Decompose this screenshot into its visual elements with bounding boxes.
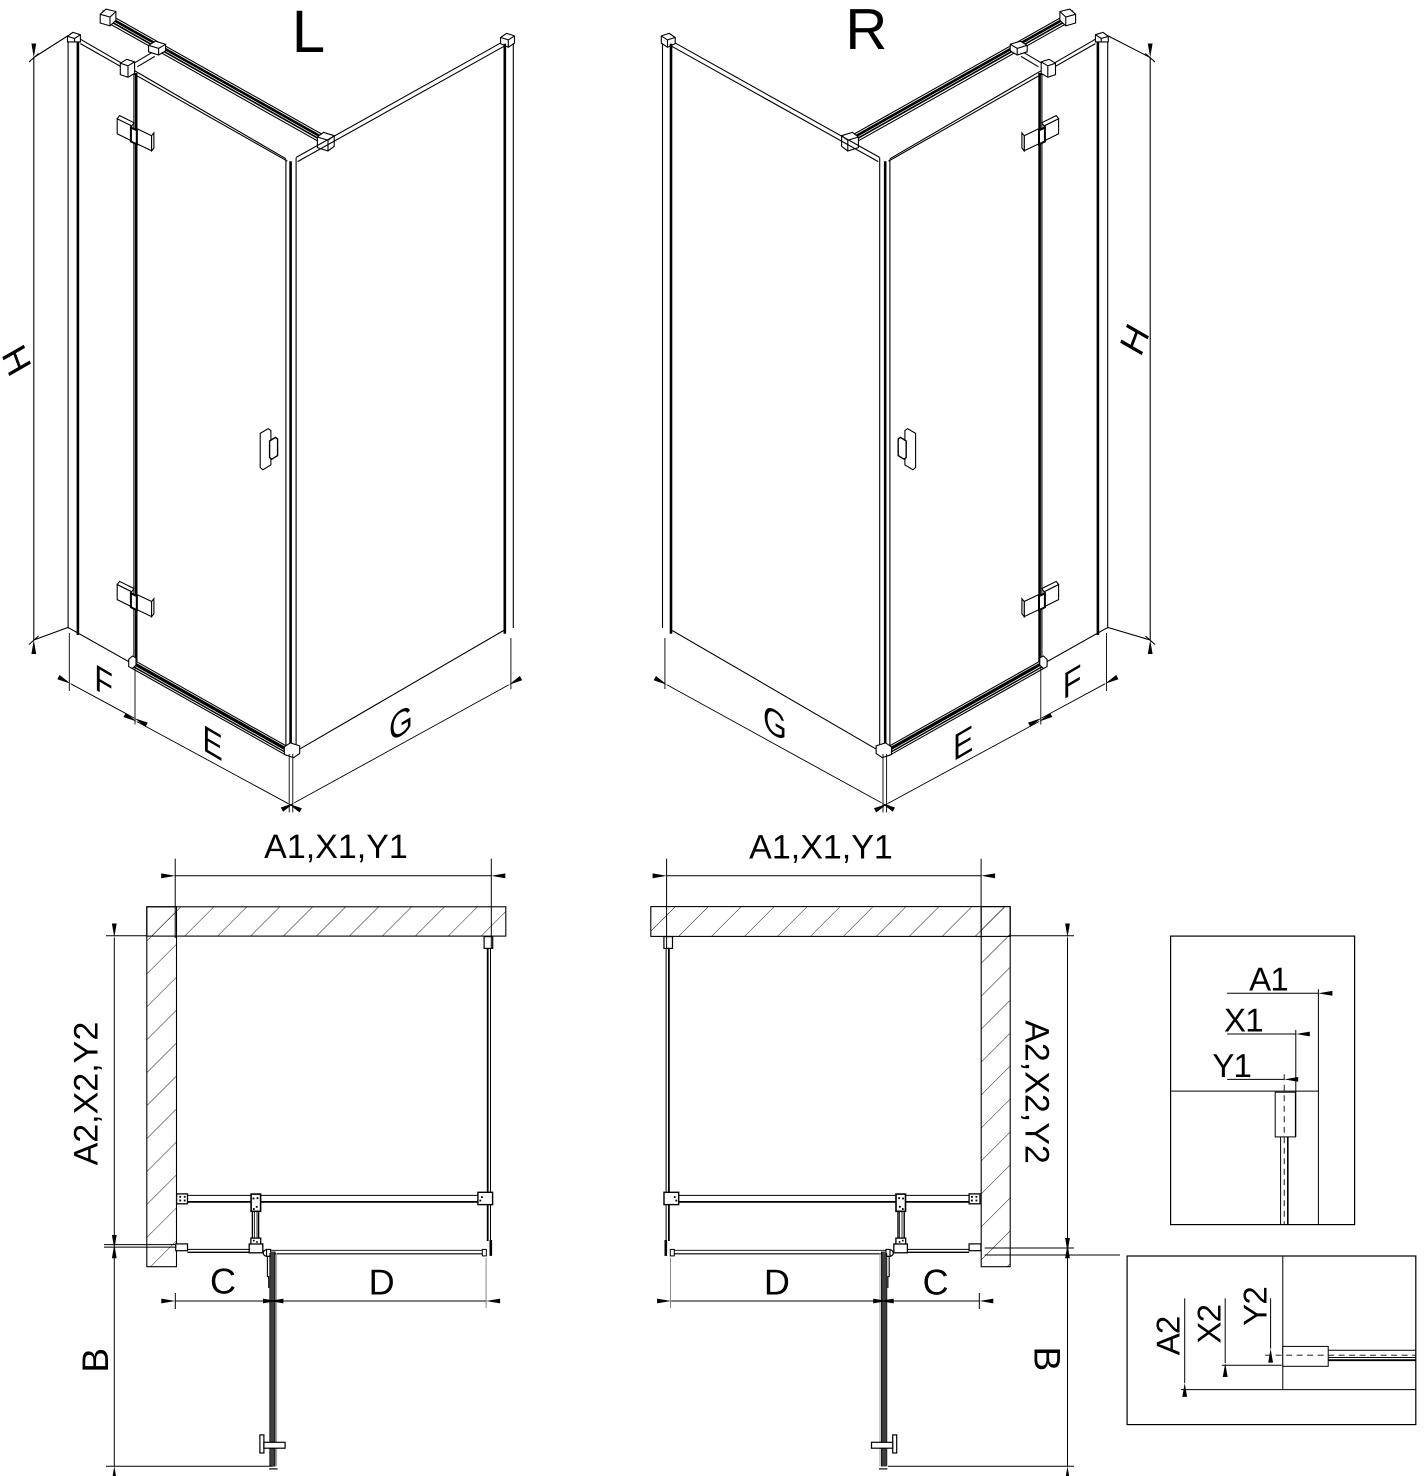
svg-text:B: B xyxy=(75,1348,116,1373)
svg-text:A1: A1 xyxy=(1249,961,1288,998)
svg-text:D: D xyxy=(764,1262,790,1303)
svg-text:A2: A2 xyxy=(1149,1317,1186,1356)
svg-text:C: C xyxy=(923,1262,949,1303)
svg-text:X1: X1 xyxy=(1224,1002,1263,1039)
svg-text:D: D xyxy=(369,1262,395,1303)
svg-text:X2: X2 xyxy=(1191,1305,1228,1344)
svg-text:C: C xyxy=(210,1261,236,1302)
svg-text:Y2: Y2 xyxy=(1237,1287,1274,1326)
svg-text:A1,X1,Y1: A1,X1,Y1 xyxy=(749,829,893,867)
svg-text:A2,X2,Y2: A2,X2,Y2 xyxy=(1018,1020,1056,1164)
svg-text:Y1: Y1 xyxy=(1212,1047,1251,1084)
svg-text:B: B xyxy=(1027,1347,1068,1372)
svg-text:L: L xyxy=(292,0,325,65)
svg-text:A2,X2,Y2: A2,X2,Y2 xyxy=(67,1022,105,1166)
svg-text:R: R xyxy=(845,0,887,62)
svg-text:A1,X1,Y1: A1,X1,Y1 xyxy=(264,828,408,866)
